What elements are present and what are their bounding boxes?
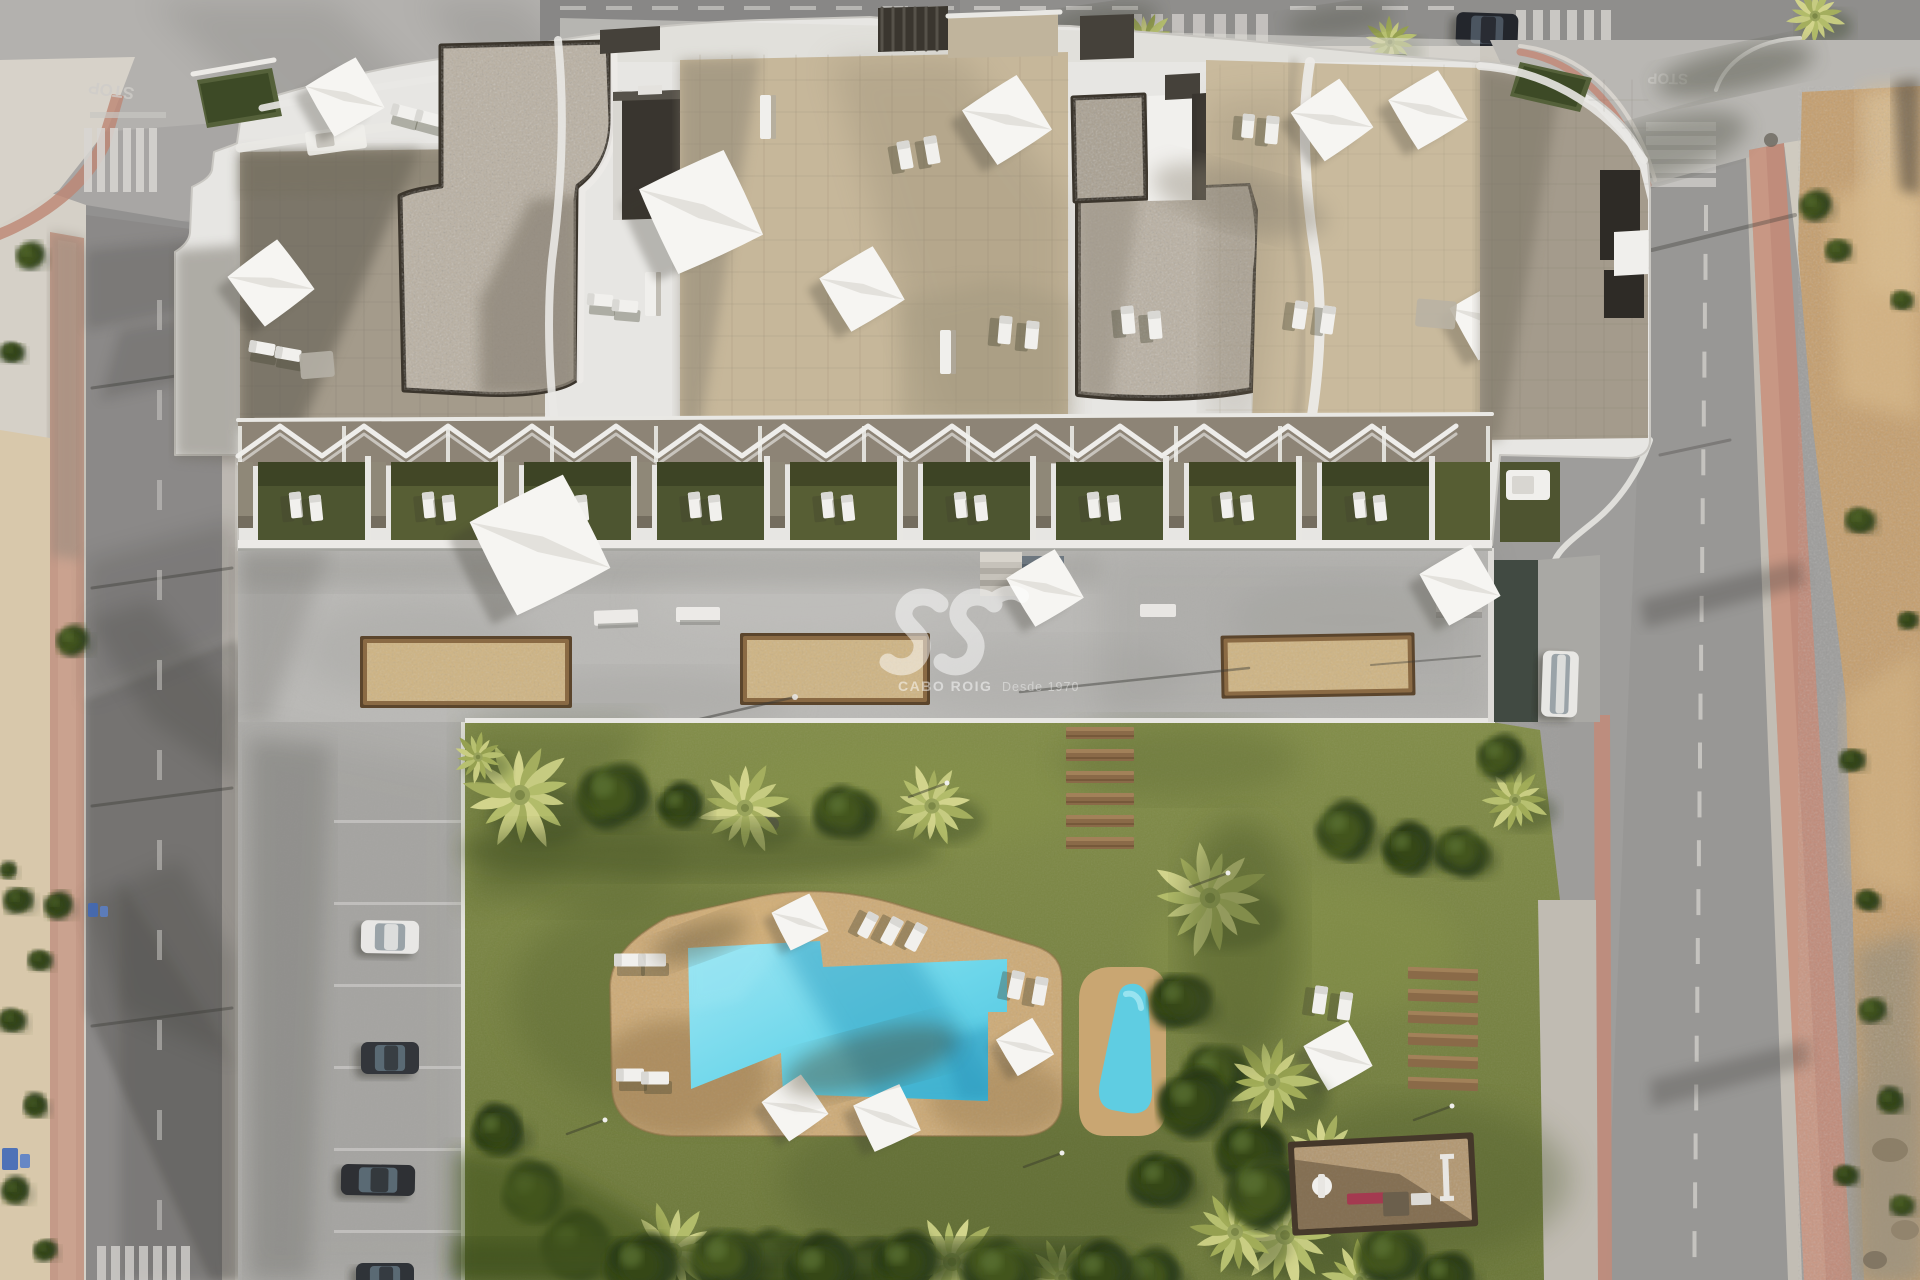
svg-text:CABO ROIG: CABO ROIG [898,678,992,694]
svg-text:Desde 1970: Desde 1970 [1002,680,1079,694]
